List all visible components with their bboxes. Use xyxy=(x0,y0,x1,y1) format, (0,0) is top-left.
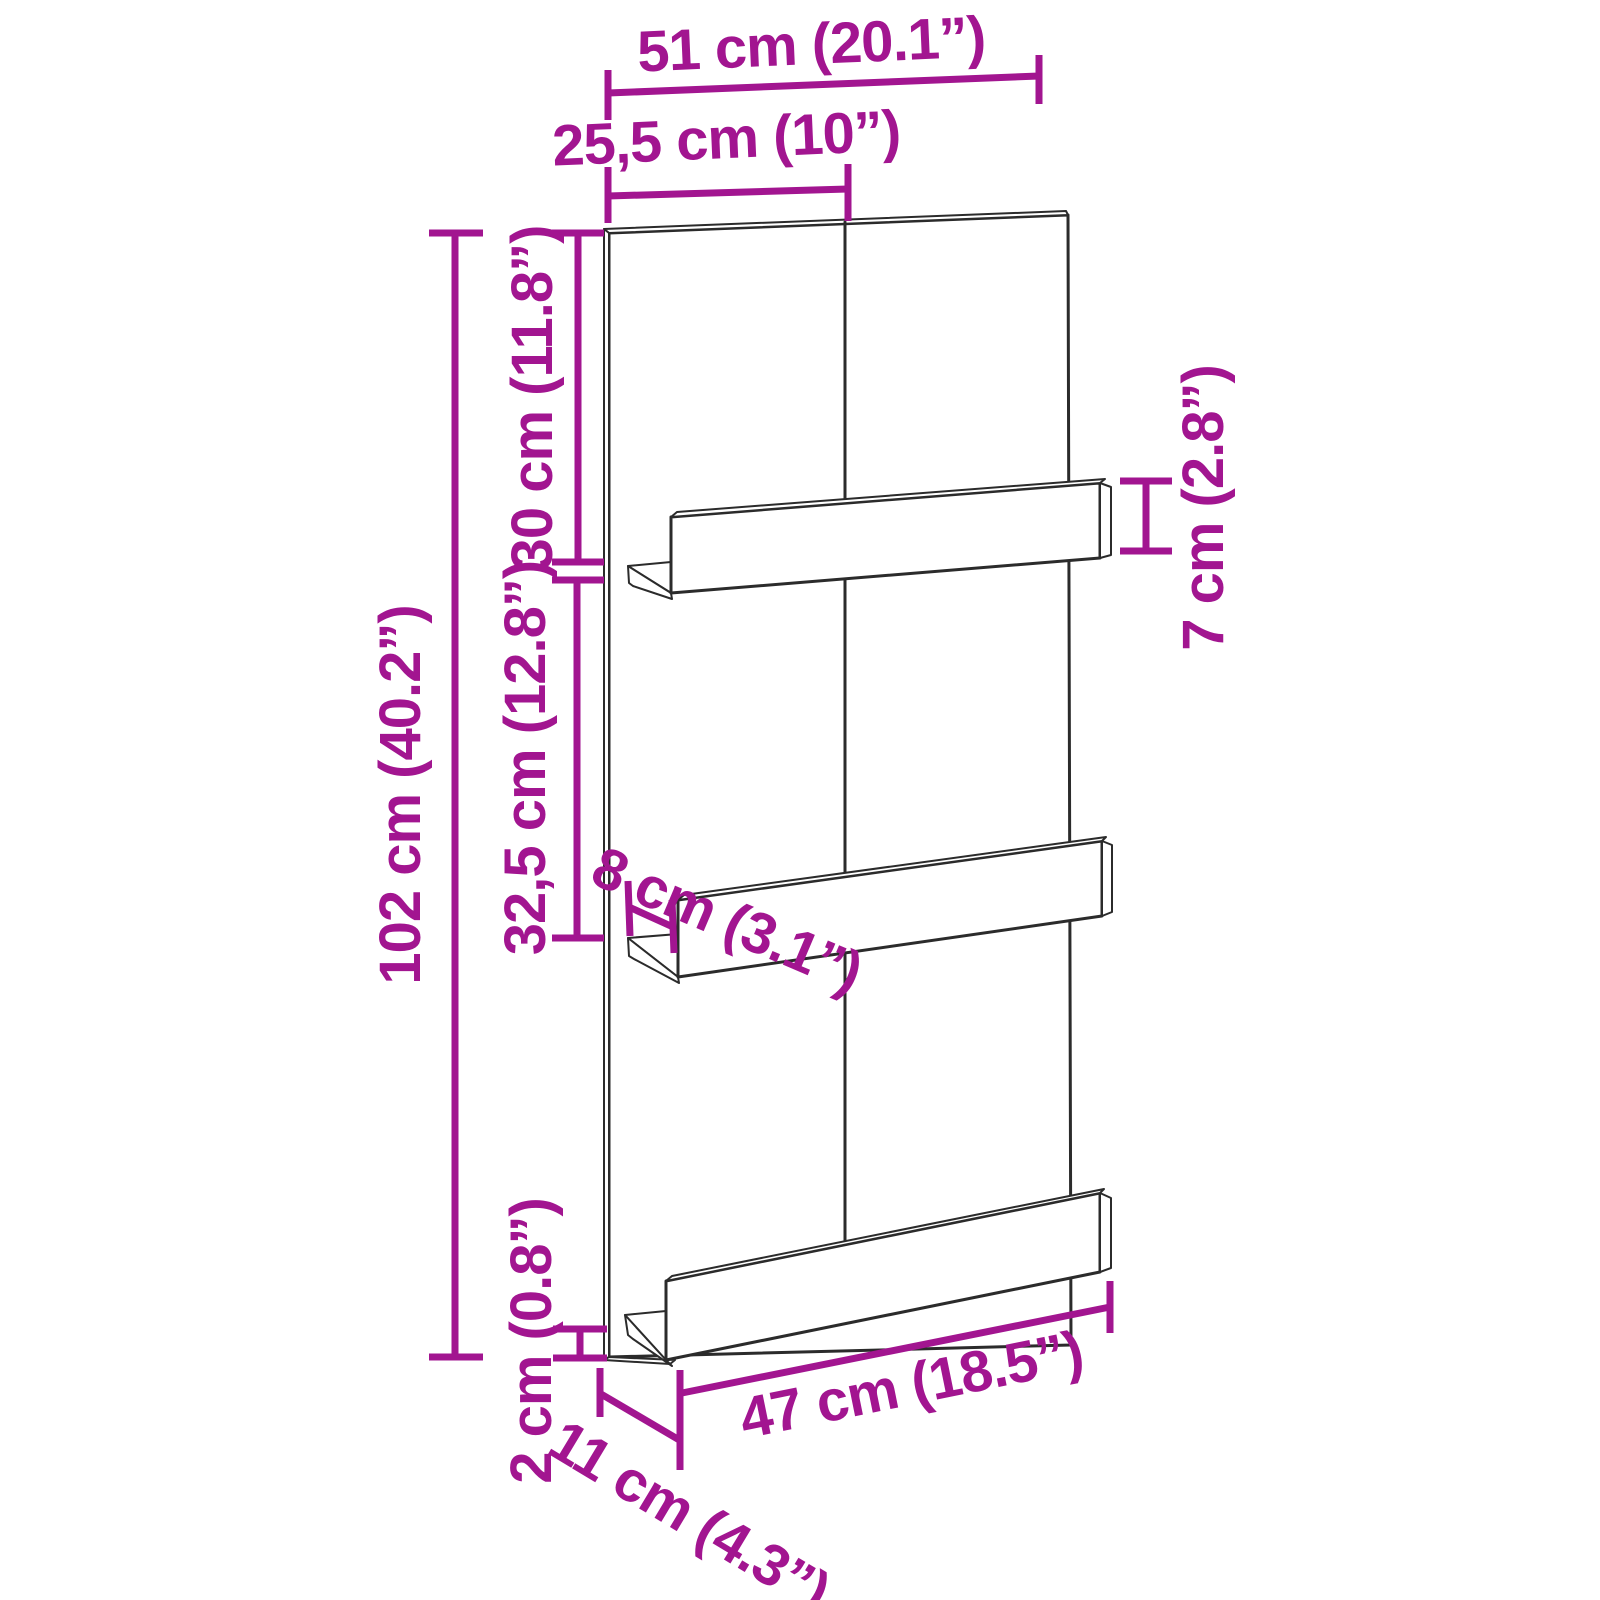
shelf-middle-rail-endcap xyxy=(1102,841,1112,916)
dim-width-half-line xyxy=(608,189,848,196)
back-panel xyxy=(604,211,1071,1364)
diagram-canvas: 51 cm (20.1”) 25,5 cm (10”) 30 cm (11.8”… xyxy=(0,0,1600,1600)
label-top-section-height: 30 cm (11.8”) xyxy=(500,226,565,571)
label-rail-height: 7 cm (2.8”) xyxy=(1171,365,1236,651)
shelf-bottom-rail-endcap xyxy=(1100,1193,1111,1272)
back-panel-left-edge xyxy=(604,229,609,1360)
dim-rail-height xyxy=(1120,481,1172,551)
back-panel-face xyxy=(609,215,1071,1357)
furniture-drawing xyxy=(604,211,1112,1366)
label-height-total: 102 cm (40.2”) xyxy=(368,605,433,984)
shelf-top-rail-endcap xyxy=(1100,483,1111,558)
label-mid-section-height: 32,5 cm (12.8”) xyxy=(493,561,558,955)
label-width-total: 51 cm (20.1”) xyxy=(636,4,987,84)
dim-height-total xyxy=(429,233,483,1357)
dimension-diagram: 51 cm (20.1”) 25,5 cm (10”) 30 cm (11.8”… xyxy=(0,0,1600,1600)
